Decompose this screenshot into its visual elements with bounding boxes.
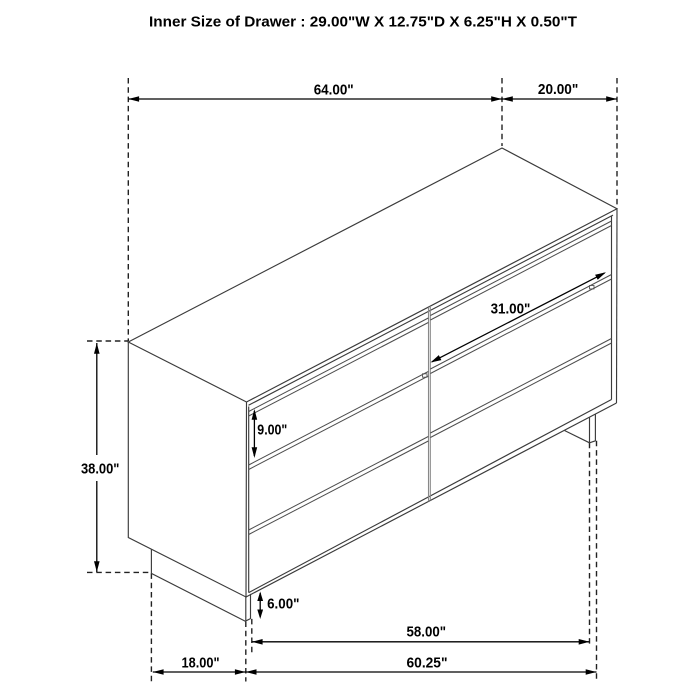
svg-text:58.00": 58.00" xyxy=(407,625,447,641)
svg-text:38.00": 38.00" xyxy=(81,462,120,478)
svg-text:9.00": 9.00" xyxy=(257,423,287,439)
svg-text:64.00": 64.00" xyxy=(314,82,354,98)
svg-text:60.25": 60.25" xyxy=(407,656,448,672)
svg-text:6.00": 6.00" xyxy=(267,597,299,613)
svg-text:Inner Size of Drawer : 29.00"W: Inner Size of Drawer : 29.00"W X 12.75"D… xyxy=(149,14,577,30)
svg-text:31.00": 31.00" xyxy=(491,301,531,317)
svg-text:20.00": 20.00" xyxy=(538,82,578,98)
svg-text:18.00": 18.00" xyxy=(182,656,220,672)
